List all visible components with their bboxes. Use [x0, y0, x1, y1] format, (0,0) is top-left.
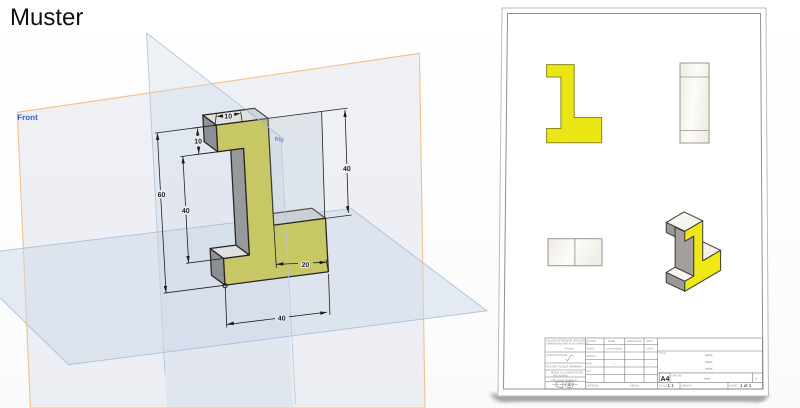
svg-text:SIGNATURE: SIGNATURE [627, 340, 642, 343]
svg-text:60: 60 [158, 192, 166, 199]
svg-text:1:1: 1:1 [668, 383, 675, 388]
svg-text:MFG: MFG [587, 363, 593, 366]
svg-text:Rig: Rig [275, 136, 284, 143]
svg-text:A: A [755, 376, 757, 380]
svg-text:DATE: DATE [646, 340, 653, 343]
svg-text:Front: Front [17, 113, 38, 122]
svg-text:DRAWN: DRAWN [587, 340, 597, 343]
svg-text:20: 20 [302, 262, 310, 269]
svg-text:WEIGHT:: WEIGHT: [682, 384, 693, 387]
svg-text:40: 40 [278, 316, 286, 323]
svg-text:DO NOT SCALE DRAWING: DO NOT SCALE DRAWING [547, 365, 584, 369]
svg-text:xxxxx: xxxxx [705, 360, 713, 364]
svg-text:APPV'D: APPV'D [587, 355, 596, 358]
svg-text:NAME: NAME [608, 340, 616, 343]
svg-text:DWG NO.: DWG NO. [672, 375, 684, 378]
svg-text:10: 10 [194, 139, 202, 146]
svg-text:xxxxx: xxxxx [705, 367, 713, 371]
svg-text:1 of 1: 1 of 1 [740, 383, 752, 388]
svg-text:DIMENSIONS ARE IN MILLIMETERS: DIMENSIONS ARE IN MILLIMETERS [547, 343, 589, 346]
svg-text:10: 10 [224, 113, 232, 120]
svg-text:SURFACE FINISH:: SURFACE FINISH: [547, 354, 569, 357]
svg-text:xxxx: xxxx [704, 377, 711, 381]
svg-text:TITLE:: TITLE: [659, 352, 667, 355]
svg-text:CHK'D: CHK'D [587, 348, 595, 351]
svg-text:FINISH:: FINISH: [565, 348, 574, 351]
svg-text:Q.A: Q.A [587, 370, 592, 373]
svg-text:AND BURRS: AND BURRS [553, 374, 568, 377]
svg-text:40: 40 [182, 208, 190, 215]
svg-text:MUSTERMANN: MUSTERMANN [607, 348, 623, 351]
svg-text:xxxxx: xxxxx [705, 353, 713, 357]
svg-text:A4: A4 [661, 376, 670, 383]
svg-text:MATERIAL:: MATERIAL: [587, 385, 600, 388]
svg-text:SHEET: SHEET [730, 384, 739, 387]
svg-text:USE xxxx FOR FINISH: USE xxxx FOR FINISH [551, 379, 577, 382]
svg-text:DEBUR:: DEBUR: [630, 385, 640, 388]
svg-text:40: 40 [343, 166, 351, 173]
svg-text:Muster: Muster [10, 4, 83, 31]
svg-text:XX/XX: XX/XX [646, 348, 654, 351]
